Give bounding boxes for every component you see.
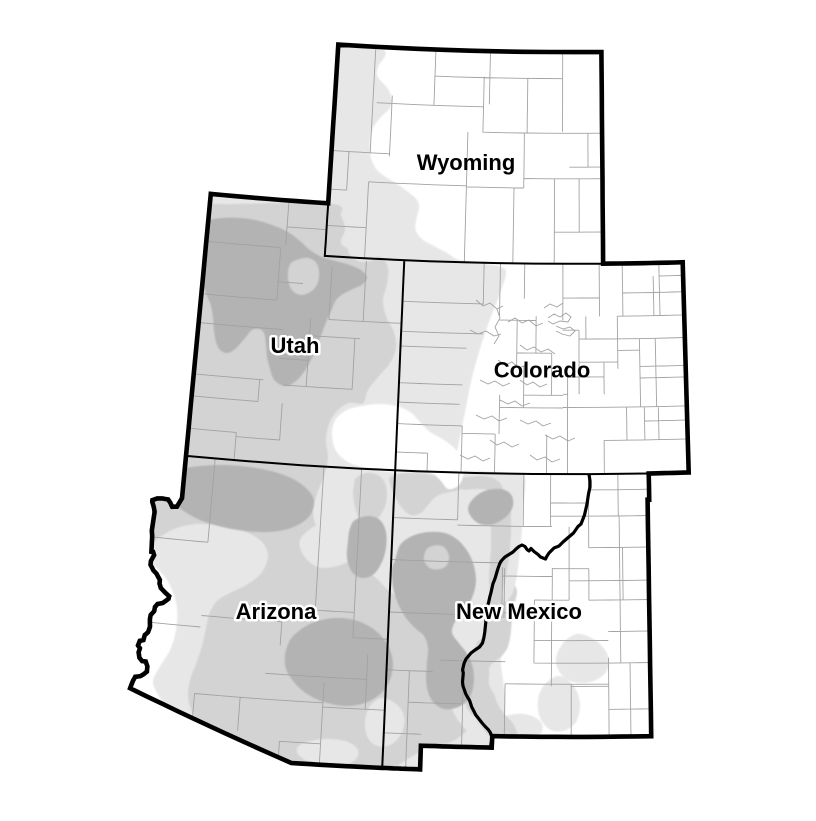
- svg-text:New Mexico: New Mexico: [456, 599, 582, 624]
- svg-text:Arizona: Arizona: [236, 599, 317, 624]
- svg-text:Wyoming: Wyoming: [417, 150, 516, 175]
- svg-text:Colorado: Colorado: [494, 358, 591, 383]
- svg-text:Utah: Utah: [271, 333, 320, 358]
